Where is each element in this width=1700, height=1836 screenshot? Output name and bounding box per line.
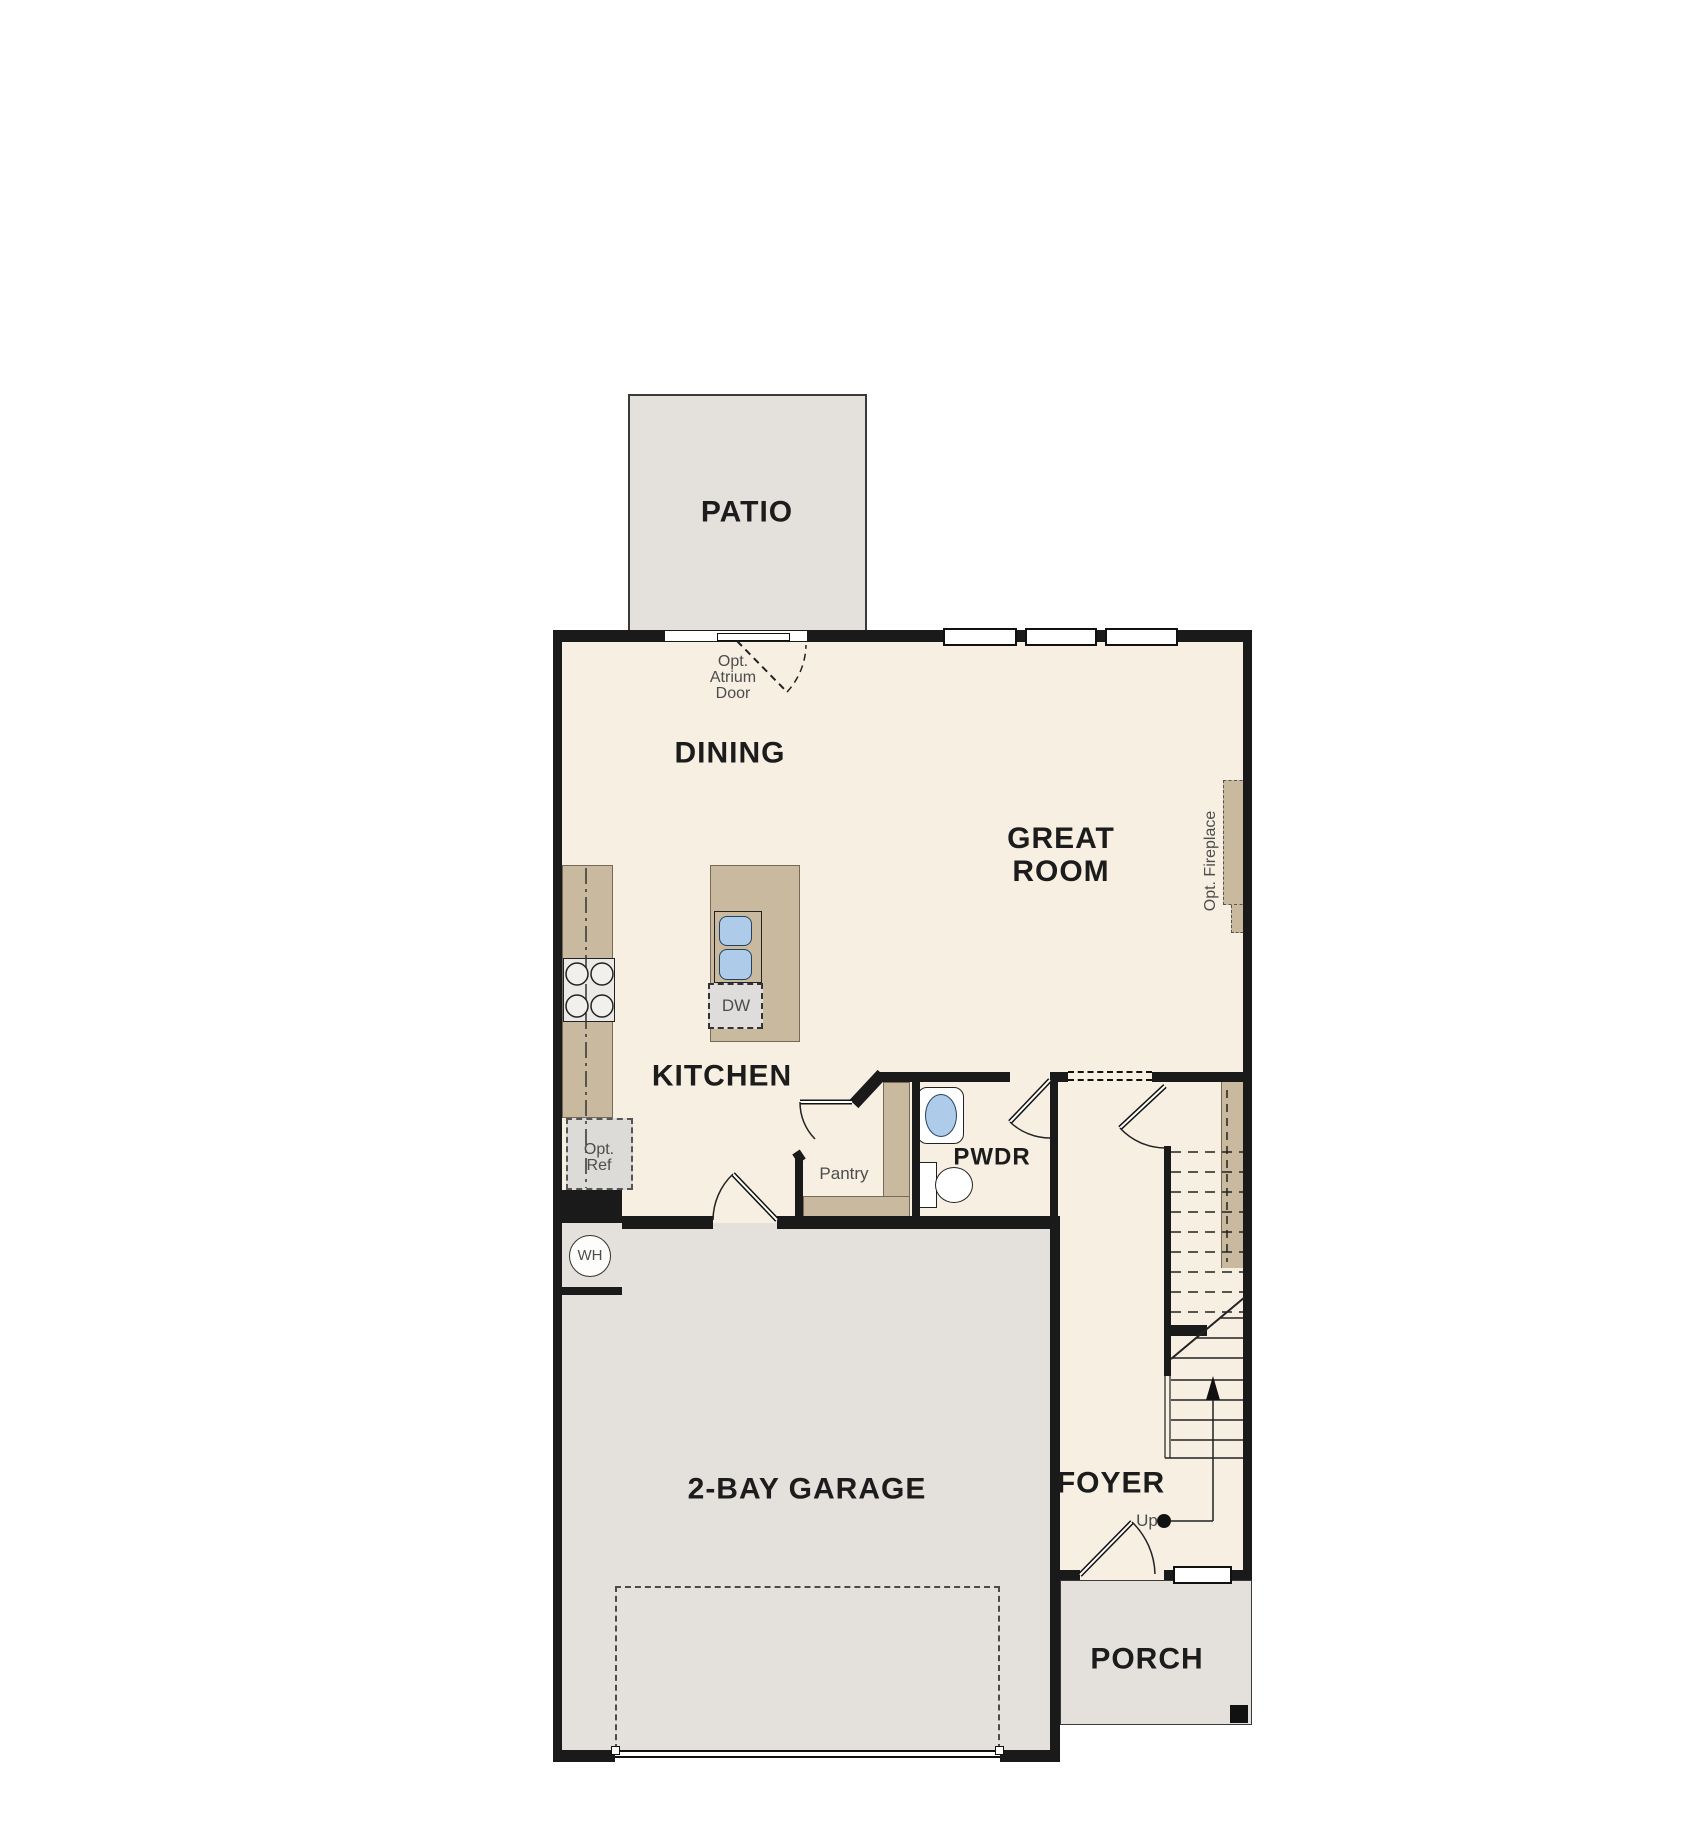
wall-pantry-left — [795, 1158, 803, 1224]
cased-opening-dash-top — [1068, 1071, 1152, 1073]
window-great-room-2 — [1025, 628, 1097, 646]
window-great-room-3 — [1105, 628, 1178, 646]
wall-right — [1243, 630, 1252, 1580]
water-heater-label: WH — [578, 1248, 603, 1264]
wall-stair-closet — [1164, 1146, 1171, 1376]
great-room-label: GREAT ROOM — [1007, 822, 1115, 888]
patio-label: PATIO — [701, 496, 793, 529]
powder-label: PWDR — [953, 1141, 1030, 1174]
window-foyer — [1173, 1566, 1232, 1584]
island-sink-basin-top — [719, 916, 752, 946]
wall-kitchen-corner-mass — [553, 1190, 622, 1223]
wall-hall-a — [878, 1072, 1010, 1082]
atrium-door-sill — [717, 633, 790, 641]
wall-front-left — [1060, 1570, 1080, 1580]
wall-garage-bottom-left — [553, 1750, 615, 1762]
cased-opening-dash-bottom — [1068, 1079, 1152, 1081]
porch-post — [1230, 1705, 1248, 1723]
cooktop — [563, 958, 615, 1022]
wall-water-heater-band — [558, 1287, 622, 1295]
atrium-door-label: Opt. Atrium Door — [710, 654, 756, 702]
optional-refrigerator-label: Opt. Ref — [584, 1142, 614, 1174]
wall-hall-c — [1152, 1072, 1243, 1082]
garage-label: 2-BAY GARAGE — [688, 1473, 927, 1506]
garage-door-end-left — [611, 1746, 620, 1755]
pantry-label: Pantry — [819, 1166, 868, 1182]
toilet-tank — [917, 1162, 937, 1208]
optional-fireplace-label: Opt. Fireplace — [1203, 811, 1219, 911]
dining-label: DINING — [675, 737, 786, 770]
foyer-label: FOYER — [1057, 1467, 1165, 1500]
wall-powder-left — [912, 1082, 920, 1222]
garage-door-end-right — [995, 1746, 1004, 1755]
floor-plan: PATIO DINING GREAT ROOM KITCHEN PWDR FOY… — [0, 0, 1700, 1836]
garage-door-track-dashed — [615, 1586, 1000, 1750]
wall-hall-b — [1050, 1072, 1068, 1082]
window-great-room-1 — [943, 628, 1017, 646]
kitchen-label: KITCHEN — [652, 1060, 792, 1093]
dishwasher-label: DW — [722, 998, 750, 1014]
stair-upper-wall — [1221, 1082, 1243, 1268]
wall-powder-right — [1050, 1082, 1058, 1222]
powder-sink-basin — [925, 1094, 957, 1137]
stair-up-label: Up — [1136, 1513, 1158, 1529]
wall-garage-top-left — [622, 1216, 713, 1229]
wall-front-right — [1232, 1570, 1252, 1580]
island-sink-basin-bottom — [719, 949, 752, 980]
porch-label: PORCH — [1090, 1643, 1203, 1676]
garage-door-line — [615, 1750, 1000, 1758]
wall-garage-bottom-right — [1000, 1750, 1060, 1762]
wall-stair-stub — [1171, 1325, 1207, 1336]
